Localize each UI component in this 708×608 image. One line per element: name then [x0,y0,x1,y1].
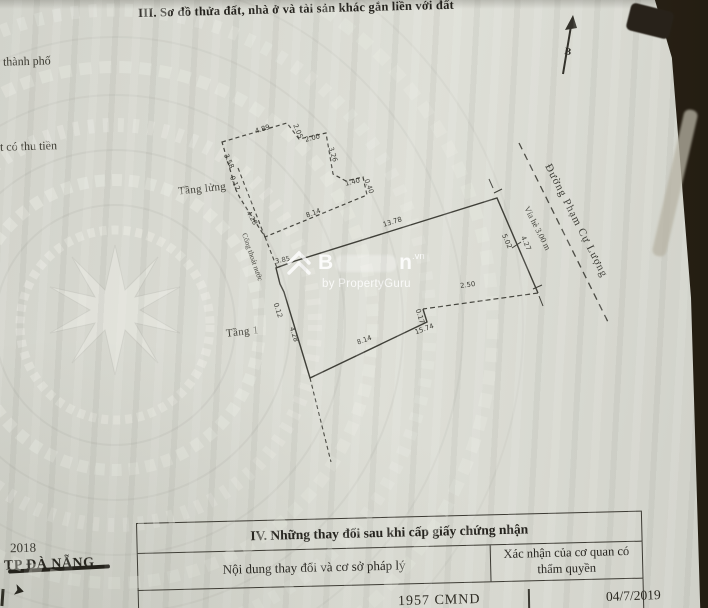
street-name-label: Đường Phạm Cự Lượng [542,162,610,280]
watermark-letter-first: B [318,250,333,276]
cadastral-sketch-canvas: 4.89 2.05 2.00 3.26 1.40 0.40 8.14 3.58 … [0,0,708,608]
dim-label: 2.50 [460,280,476,290]
certificate-photo: 4.89 2.05 2.00 3.26 1.40 0.40 8.14 3.58 … [0,0,708,608]
north-label: B [563,46,572,58]
dim-label: 13.78 [382,215,403,228]
dim-label: 3.26 [327,146,339,163]
dim-label: 1.40 [344,176,361,187]
dim-label: 4.89 [254,123,271,135]
dong-son-drum-emblem [0,0,523,608]
dim-label: 5.02 [500,233,513,250]
north-arrow: B [563,15,577,74]
watermark-letter-last: n [399,250,412,276]
watermark-byline: by PropertyGuru [322,278,411,290]
dim-label: 2.00 [304,132,321,143]
dim-label: 15.74 [414,322,435,336]
watermark-blur-haze [335,255,397,272]
dim-label: 8.14 [356,334,373,347]
north-arrow-head [565,15,577,30]
dim-label: 0.40 [363,178,376,195]
street-line [519,143,608,322]
listing-watermark: B n .vn [286,250,425,278]
dim-label: 0.12 [272,302,284,319]
dim-label: 3.58 [222,153,235,170]
drum-star [50,245,180,375]
frontage-dashed-line [423,293,538,309]
watermark-tld: .vn [412,251,425,262]
dim-label: 4.27 [519,235,532,252]
house-chevron-logo-icon [286,250,312,278]
